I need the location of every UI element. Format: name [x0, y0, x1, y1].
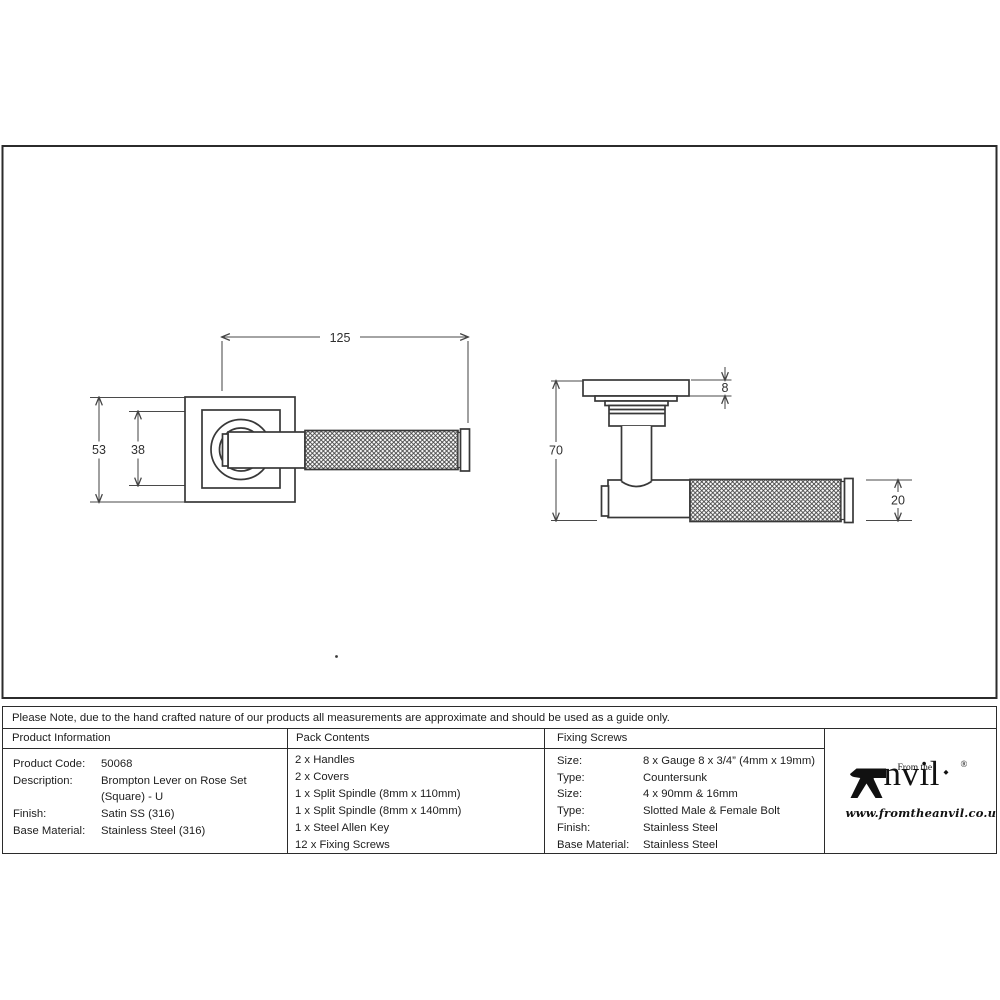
field-label: Type: — [557, 772, 643, 784]
dim-inner-rose-label: 38 — [131, 443, 145, 457]
field-value: 8 x Gauge 8 x 3/4” (4mm x 19mm) — [643, 755, 820, 767]
pack-item: 12 x Fixing Screws — [295, 837, 540, 854]
registered-mark: ® — [961, 759, 968, 769]
pack-contents-body: 2 x Handles 2 x Covers 1 x Split Spindle… — [287, 749, 544, 854]
spec-table: Product Information Pack Contents Fixing… — [2, 728, 997, 854]
fixing-screws-body: Size: 8 x Gauge 8 x 3/4” (4mm x 19mm) Ty… — [544, 749, 824, 854]
note-text: Please Note, due to the hand crafted nat… — [12, 712, 670, 724]
anvil-logo: From the ◆ nvil ® www.fromtheanvil.co.uk — [849, 761, 973, 821]
grip-end-cap-side — [845, 479, 854, 523]
lever-bar — [228, 432, 305, 468]
field-value: Slotted Male & Female Bolt — [643, 805, 820, 817]
field-label: Size: — [557, 788, 643, 800]
field-label: Finish: — [557, 822, 643, 834]
note-bar: Please Note, due to the hand crafted nat… — [2, 706, 997, 729]
field-value: Stainless Steel — [643, 822, 820, 834]
dim-projection-label: 70 — [549, 444, 563, 458]
dim-front-width-label: 125 — [330, 331, 351, 345]
field-value: Brompton Lever on Rose Set — [101, 775, 283, 787]
field-label: Type: — [557, 805, 643, 817]
header-fixing-screws: Fixing Screws — [544, 729, 824, 749]
dim-grip-diameter-label: 20 — [891, 494, 905, 508]
dim-rose-depth-label: 8 — [722, 381, 729, 395]
field-value: Countersunk — [643, 772, 820, 784]
dim-rose-size-label: 53 — [92, 443, 106, 457]
field-label: Size: — [557, 755, 643, 767]
field-label: Base Material: — [13, 825, 101, 837]
field-value: Stainless Steel (316) — [101, 825, 283, 837]
lever-bar-end — [223, 434, 229, 466]
field-value: 50068 — [101, 758, 283, 770]
knurled-grip-front — [305, 431, 458, 470]
field-label: Base Material: — [557, 839, 643, 851]
field-value: (Square) - U — [101, 791, 283, 803]
pack-item: 1 x Split Spindle (8mm x 140mm) — [295, 803, 540, 820]
field-label: Finish: — [13, 808, 101, 820]
header-product-information: Product Information — [3, 729, 287, 749]
field-value: Stainless Steel — [643, 839, 820, 851]
field-label: Product Code: — [13, 758, 101, 770]
field-value: 4 x 90mm & 16mm — [643, 788, 820, 800]
lever-rear-cap — [602, 486, 609, 516]
logo-website: www.fromtheanvil.co.uk — [846, 806, 997, 820]
field-label: Description: — [13, 775, 101, 787]
logo-diamond: ◆ — [944, 768, 949, 776]
pack-item: 1 x Split Spindle (8mm x 110mm) — [295, 786, 540, 803]
logo-wordmark: nvil — [884, 754, 940, 794]
pack-item: 2 x Handles — [295, 752, 540, 769]
stray-dot — [335, 655, 338, 658]
brand-logo-cell: From the ◆ nvil ® www.fromtheanvil.co.uk — [824, 729, 996, 853]
field-value: Satin SS (316) — [101, 808, 283, 820]
grip-end-cap-front — [461, 429, 470, 471]
header-pack-contents: Pack Contents — [287, 729, 544, 749]
pack-item: 1 x Steel Allen Key — [295, 820, 540, 837]
drawing-box-border — [3, 146, 997, 698]
pack-item: 2 x Covers — [295, 769, 540, 786]
lever-body-side — [608, 480, 690, 518]
knurled-grip-side — [690, 480, 841, 522]
anvil-icon — [849, 765, 887, 799]
rose-collar-side — [609, 406, 665, 427]
rose-plate-side — [583, 380, 689, 396]
product-information-body: Product Code: 50068 Description: Brompto… — [3, 749, 287, 854]
